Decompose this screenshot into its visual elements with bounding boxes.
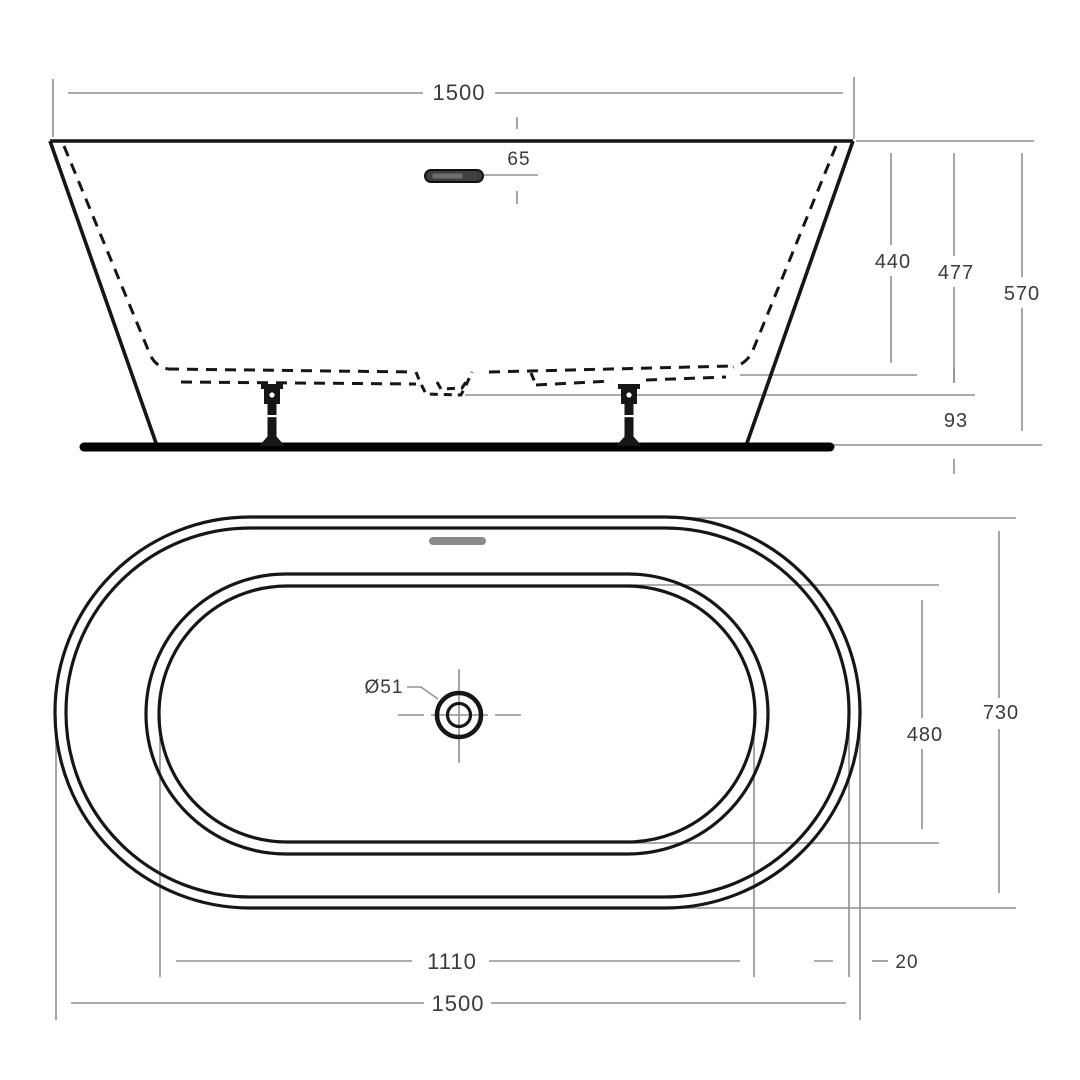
side-view-dimensions: 1500 65 440 477 570 (53, 77, 1042, 474)
drawing-svg: 1500 65 440 477 570 (0, 0, 1080, 1080)
leg-left (259, 384, 285, 446)
inner-wall-dashed-left (64, 146, 168, 369)
plan-view-geometry (55, 517, 860, 908)
overflow-outlet-highlight (432, 174, 463, 179)
plan-basin-outer (146, 574, 768, 854)
shell-inner-floor-right (489, 366, 733, 372)
dim-730-label: 730 (983, 702, 1019, 724)
leg-right-pin (626, 392, 631, 397)
right-wall-line (747, 141, 853, 443)
shell-step (531, 373, 536, 385)
plan-outer-rim-outer (55, 517, 860, 908)
leg-right-thread (625, 415, 634, 417)
drain-label-leader (407, 687, 438, 699)
dim-65-label: 65 (507, 149, 530, 170)
left-wall-line (50, 141, 156, 443)
bathtub-dimension-drawing: 1500 65 440 477 570 (0, 0, 1080, 1080)
drain-sump-lip (437, 382, 466, 389)
dim-93-label: 93 (944, 410, 968, 432)
leg-right (616, 384, 642, 446)
shell-inner-floor-left (168, 369, 415, 372)
leg-right-plate (618, 384, 640, 389)
dim-570-label: 570 (1004, 283, 1040, 305)
leg-right-foot (616, 436, 642, 446)
dim-1500-top-label: 1500 (433, 80, 486, 105)
dim-480-label: 480 (907, 724, 943, 746)
dim-477-label: 477 (938, 262, 974, 284)
plan-view-dimensions: 730 480 1110 20 1500 (56, 518, 1019, 1020)
dim-20-label: 20 (895, 952, 918, 973)
shell-bottom-left (181, 382, 416, 384)
overflow-outlet-plan (429, 537, 486, 545)
leg-right-stem (625, 404, 634, 437)
leg-left-foot (259, 436, 285, 446)
dim-1110-label: 1110 (427, 949, 477, 974)
dim-440-label: 440 (875, 251, 911, 273)
side-view-geometry (50, 141, 853, 447)
drain-diameter-label: Ø51 (365, 677, 404, 698)
leg-left-pin (269, 392, 274, 397)
leg-left-stem (268, 404, 277, 437)
plan-basin-inner (159, 586, 755, 842)
shell-bottom-right (536, 377, 726, 385)
dim-1500-bottom-label: 1500 (432, 991, 485, 1016)
leg-left-plate (261, 384, 283, 389)
plan-view: 730 480 1110 20 1500 (55, 517, 1019, 1020)
leg-left-thread (268, 415, 277, 417)
side-view: 1500 65 440 477 570 (50, 77, 1042, 474)
